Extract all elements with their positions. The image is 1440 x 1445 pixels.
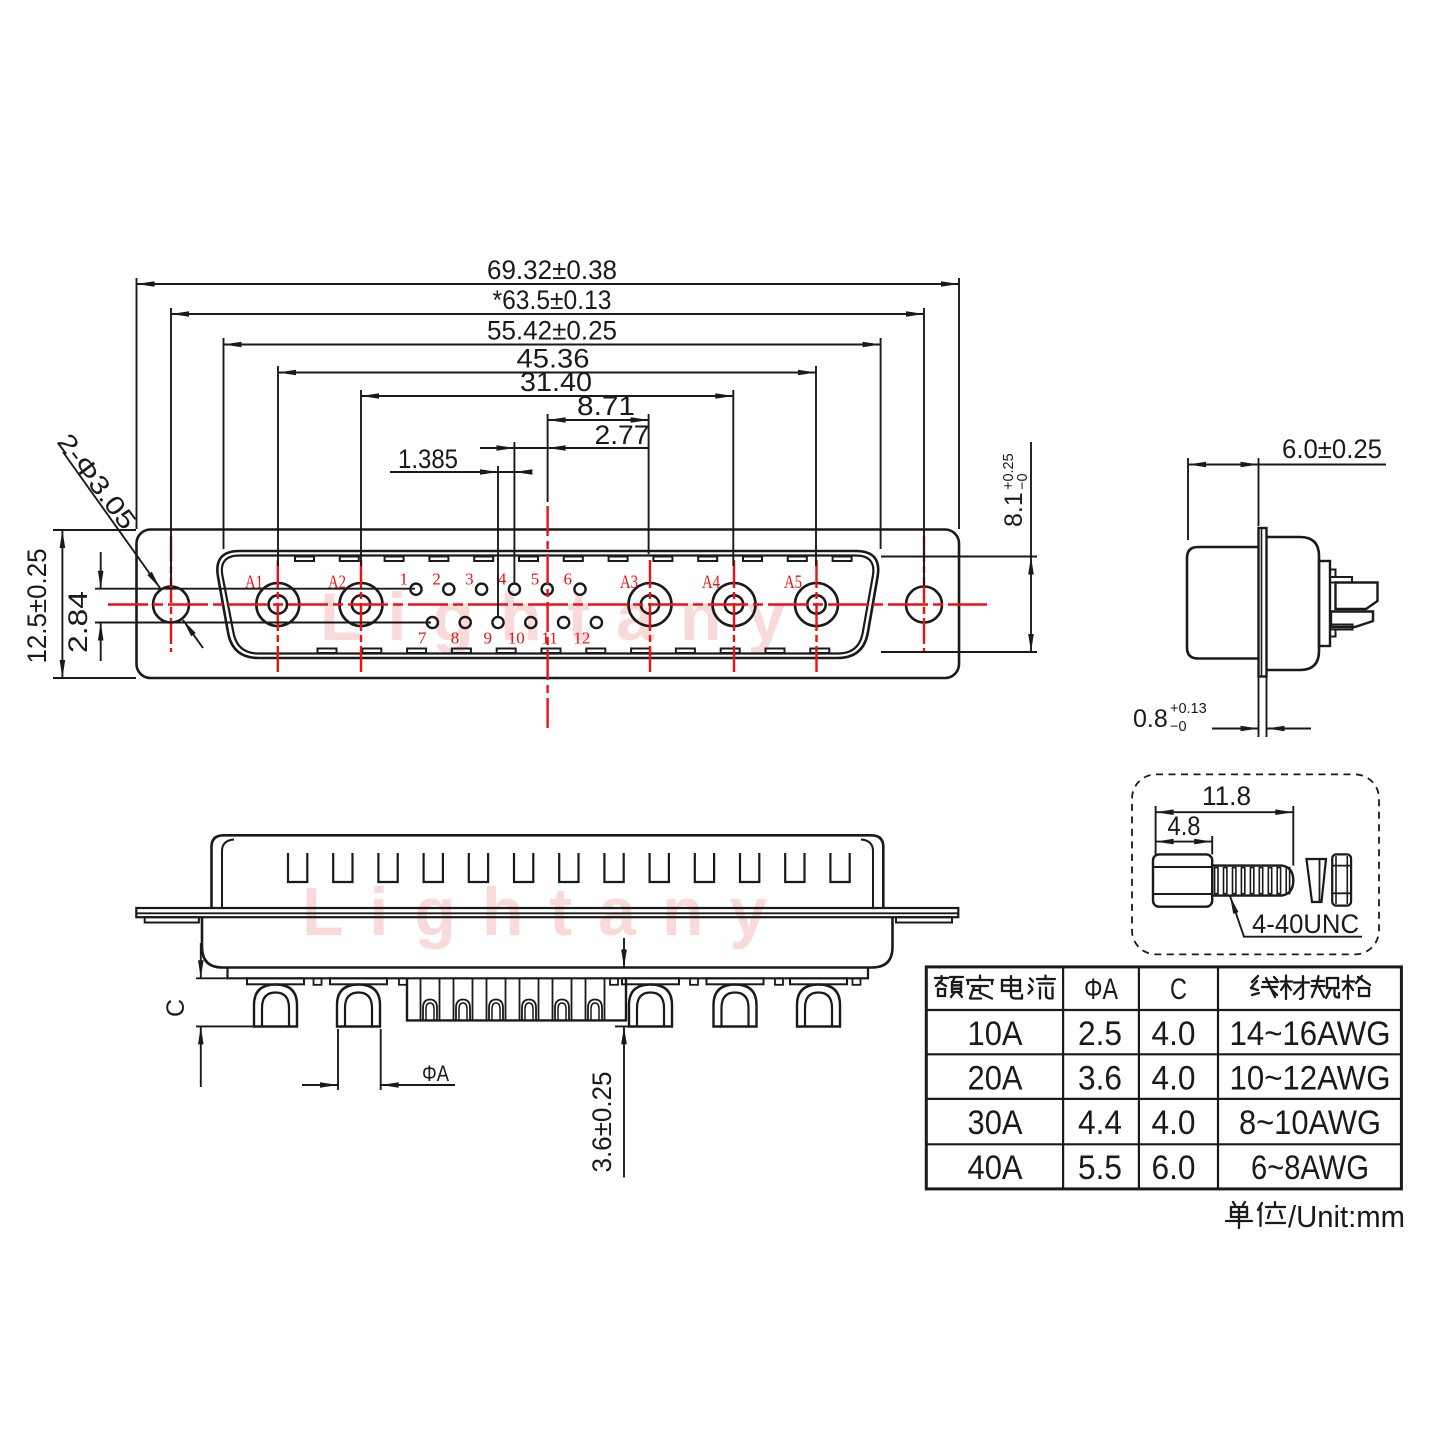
svg-text:6.0±0.25: 6.0±0.25 [1282,434,1382,464]
svg-text:2: 2 [432,570,441,589]
svg-text:5: 5 [531,570,540,589]
svg-text:3.6: 3.6 [1078,1060,1122,1098]
svg-text:A1: A1 [245,572,263,593]
svg-text:5.5: 5.5 [1078,1149,1122,1187]
svg-text:8~10AWG: 8~10AWG [1239,1104,1381,1142]
svg-text:*63.5±0.13: *63.5±0.13 [493,285,612,315]
svg-text:14~16AWG: 14~16AWG [1230,1015,1391,1053]
svg-text:−0: −0 [1015,473,1031,490]
svg-text:ΦA: ΦA [1084,973,1118,1006]
svg-text:3.6±0.25: 3.6±0.25 [587,1072,617,1173]
svg-text:C: C [162,999,190,1017]
svg-text:C: C [1170,973,1187,1006]
svg-text:0.8: 0.8 [1133,705,1168,733]
svg-text:A2: A2 [328,572,346,593]
svg-text:2.84: 2.84 [63,591,93,653]
svg-text:/Unit:mm: /Unit:mm [1288,1199,1405,1234]
svg-text:11.8: 11.8 [1202,781,1251,811]
svg-text:30A: 30A [968,1104,1023,1142]
svg-text:2.77: 2.77 [595,420,650,450]
svg-text:4.8: 4.8 [1168,811,1201,841]
svg-text:2.5: 2.5 [1078,1015,1122,1053]
svg-text:20A: 20A [968,1060,1023,1098]
svg-text:8: 8 [451,629,460,648]
svg-text:−0: −0 [1170,719,1187,735]
svg-text:1: 1 [400,570,409,589]
svg-text:8.71: 8.71 [577,391,635,421]
svg-text:Lightany: Lightany [302,874,793,950]
svg-text:10A: 10A [968,1015,1023,1053]
svg-text:7: 7 [418,629,427,648]
svg-text:69.32±0.38: 69.32±0.38 [487,255,617,285]
svg-text:55.42±0.25: 55.42±0.25 [487,316,617,346]
svg-text:12.5±0.25: 12.5±0.25 [22,549,52,664]
svg-text:9: 9 [484,629,493,648]
svg-text:8.1: 8.1 [1000,492,1028,527]
svg-text:6: 6 [564,570,573,589]
svg-text:4: 4 [498,570,507,589]
svg-text:A4: A4 [702,572,720,593]
svg-text:+0.13: +0.13 [1170,701,1207,717]
svg-text:A5: A5 [784,572,802,593]
svg-text:A3: A3 [620,572,638,593]
svg-text:4.0: 4.0 [1152,1015,1196,1053]
svg-text:6.0: 6.0 [1152,1149,1196,1187]
svg-text:10~12AWG: 10~12AWG [1230,1060,1391,1098]
svg-text:1.385: 1.385 [398,444,458,474]
svg-text:6~8AWG: 6~8AWG [1251,1149,1369,1187]
svg-text:4.4: 4.4 [1078,1104,1122,1142]
svg-text:11: 11 [541,629,557,648]
svg-text:10: 10 [508,629,525,648]
svg-text:4.0: 4.0 [1152,1060,1196,1098]
svg-text:12: 12 [573,629,590,648]
svg-text:2-Φ3.05: 2-Φ3.05 [51,428,142,536]
svg-text:ΦA: ΦA [422,1061,449,1086]
svg-text:40A: 40A [968,1149,1023,1187]
svg-text:4-40UNC: 4-40UNC [1252,909,1359,939]
svg-text:3: 3 [465,570,474,589]
svg-text:4.0: 4.0 [1152,1104,1196,1142]
